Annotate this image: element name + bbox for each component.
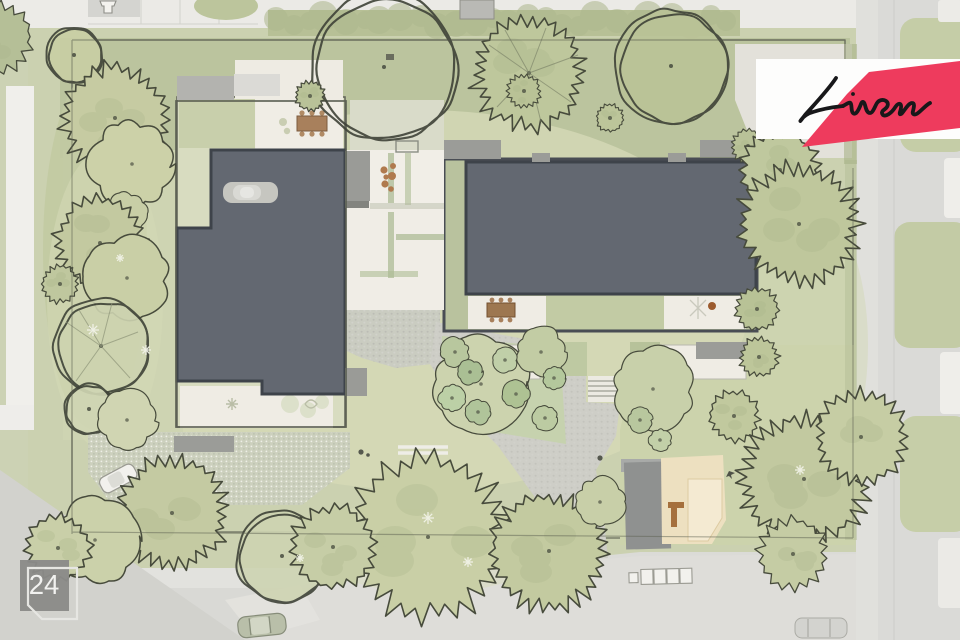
svg-text:24: 24	[29, 569, 60, 600]
